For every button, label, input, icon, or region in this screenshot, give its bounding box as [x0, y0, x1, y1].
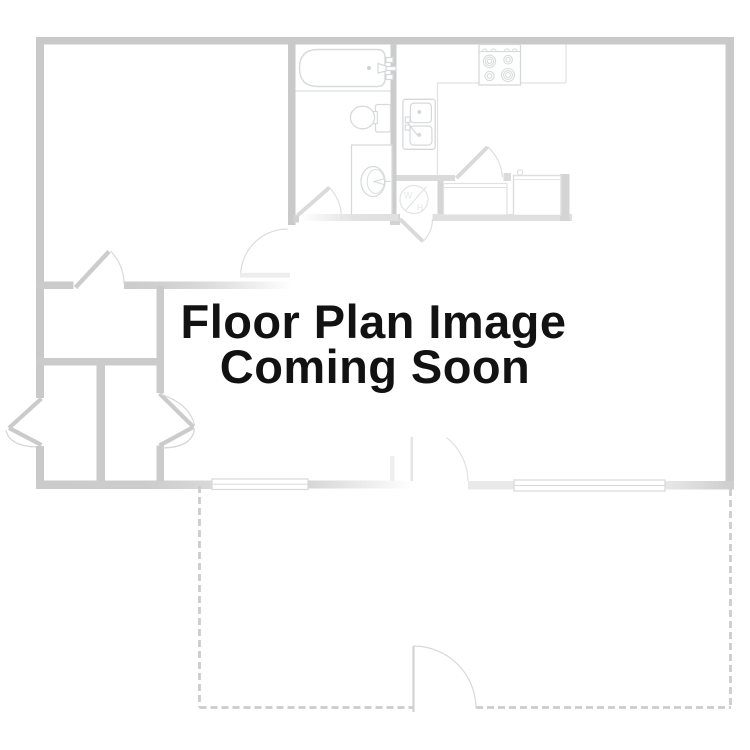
svg-text:H: H	[417, 203, 424, 213]
svg-text:W: W	[404, 191, 413, 201]
svg-text:Coming Soon: Coming Soon	[220, 340, 530, 393]
